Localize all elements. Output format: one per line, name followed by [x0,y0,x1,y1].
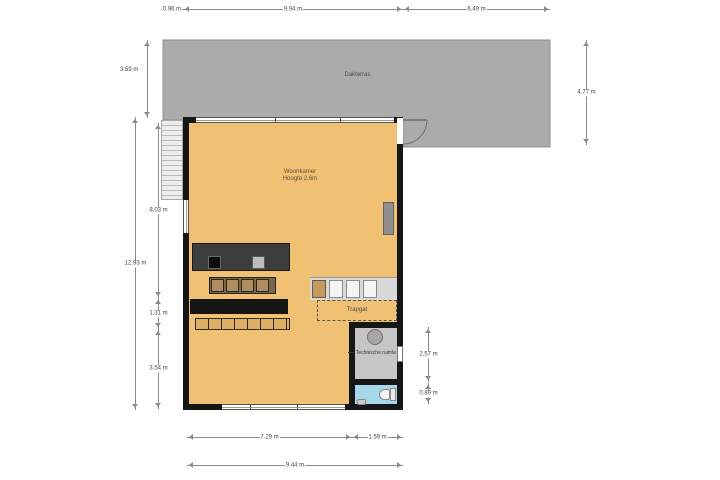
dim-right-technical: 2.57 m [428,327,429,382]
boiler [367,329,383,345]
top-wall-window [196,117,394,123]
stairwell-opening: Trapgat [317,300,397,321]
dim-label: 6.49 m [466,6,486,13]
technical-room-leader-arrow [348,352,354,353]
dim-label-left-terrace: 3.59 m [120,67,138,74]
dim-label: 4.77 m [576,89,596,96]
floor-plan-canvas: Trapgat Technische ruimte Dakterras Woon… [0,0,720,480]
stair-tread [363,280,377,298]
dim-label: 7.29 m [259,434,279,441]
technical-room-door [397,346,403,362]
cabinet-unit [211,279,224,292]
living-room-label: Woonkamer Hoogte 2.6m [260,169,340,183]
window-mullion [275,118,276,122]
dim-label: 1.59 m [367,434,387,441]
dim-left-total: 12.93 m [135,117,136,410]
dim-right-terrace: 4.77 m [586,40,587,145]
living-room-height: Hoogte 2.6m [260,176,340,183]
stairwell-label: Trapgat [347,307,367,314]
window-mullion [297,405,298,409]
window-mullion [250,405,251,409]
cabinet-unit [241,279,254,292]
stair-landing [312,280,326,298]
dim-left-island: 1.31 m [158,298,159,329]
dim-left-living: 8.03 m [158,123,159,298]
window-mullion [340,118,341,122]
bottom-wall-window [222,404,345,410]
wardrobe [383,202,394,235]
dim-label: 8.03 m [148,207,168,214]
kitchen-counter [192,243,290,271]
kitchen-island-counter [190,299,288,314]
staircase [310,277,397,300]
window-glass-line [186,200,187,233]
dim-left-lower: 3.54 m [158,329,159,409]
dim-label: 0.96 m [162,6,182,13]
living-room-name: Woonkamer [260,169,340,176]
cabinet-unit [226,279,239,292]
toilet-sink [357,399,366,405]
stair-tread [346,280,360,298]
window-glass-line [196,120,394,121]
dim-top-building: 9.94 m [183,9,403,10]
dim-top-terrace: 6.49 m [403,9,550,10]
dim-label: 1.31 m [148,310,168,317]
cooktop [208,256,221,269]
terrace-door-opening [397,118,403,144]
dim-label: 2.57 m [418,351,438,358]
toilet-tank [390,388,396,401]
dim-bottom-technical: 1.59 m [352,437,403,438]
stair-tread [329,280,343,298]
left-wall-window [183,200,189,233]
dim-label: 0.89 m [418,390,438,397]
dim-left-terrace [147,40,148,118]
dim-bottom-total: 9.44 m [187,465,403,466]
terrace-label: Dakterras [320,72,395,79]
dim-label: 12.93 m [124,260,148,267]
toilet-bowl [379,389,390,400]
dim-label: 3.54 m [148,366,168,373]
dim-bottom-living: 7.29 m [187,437,352,438]
dim-right-toilet: 0.89 m [428,383,429,404]
kitchen-sink [252,256,265,269]
cabinet-unit [256,279,269,292]
dim-label: 9.94 m [283,6,303,13]
dim-label: 9.44 m [285,462,305,469]
technical-room-label: Technische ruimte [355,350,397,356]
window-glass-line [222,407,345,408]
dim-top-stairs: 0.96 m [161,9,183,10]
external-stairs [161,120,183,200]
kitchen-cabinet-row [209,277,276,294]
radiator [195,318,290,330]
